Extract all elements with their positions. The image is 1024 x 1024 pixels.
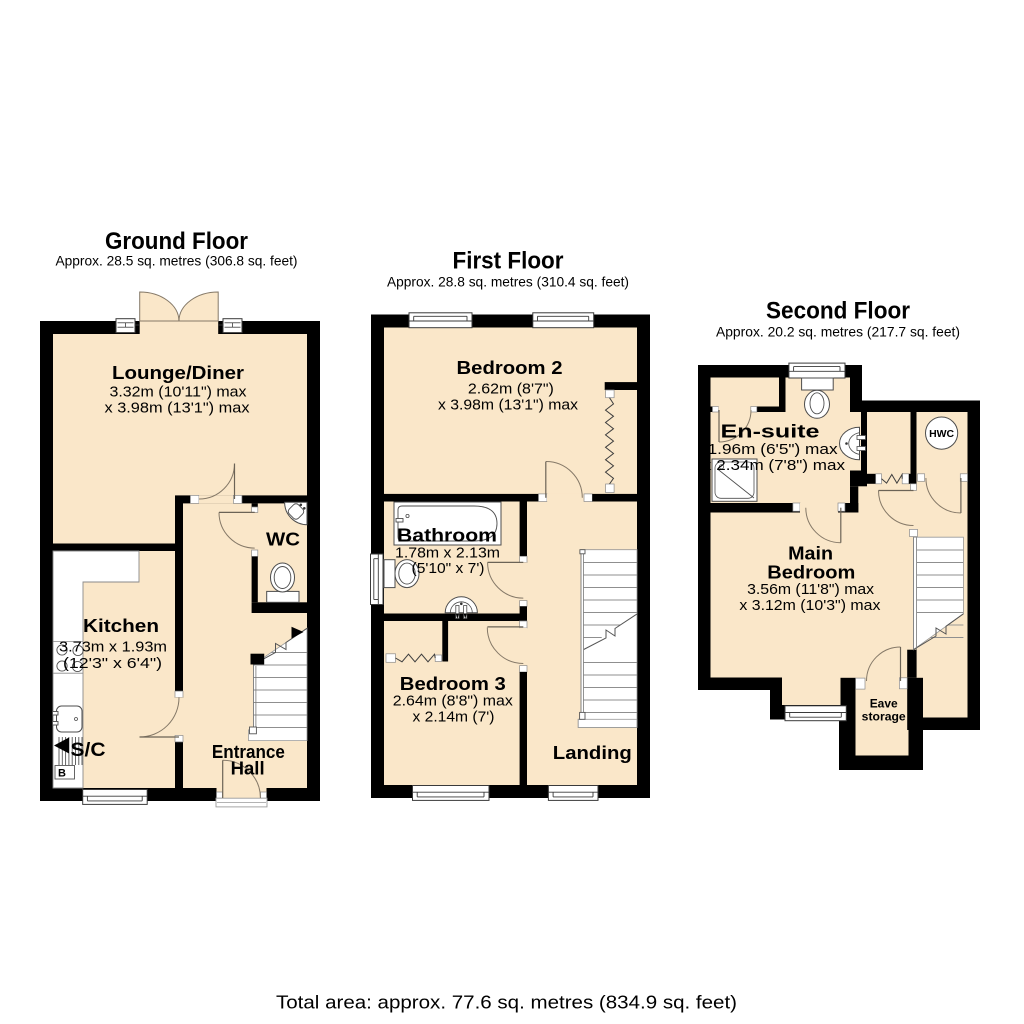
svg-text:(12'3" x 6'4"): (12'3" x 6'4")	[63, 655, 162, 672]
svg-text:storage: storage	[862, 710, 906, 724]
svg-text:3.73m x 1.93m: 3.73m x 1.93m	[59, 639, 167, 656]
svg-text:x 3.12m (10'3") max: x 3.12m (10'3") max	[739, 597, 881, 614]
svg-text:Second Floor: Second Floor	[766, 298, 910, 325]
svg-text:HWC: HWC	[929, 429, 954, 440]
svg-text:First Floor: First Floor	[453, 248, 564, 275]
svg-text:Ground Floor: Ground Floor	[105, 228, 248, 255]
svg-text:Hall: Hall	[231, 759, 265, 779]
svg-text:B: B	[58, 768, 66, 780]
svg-text:Lounge/Diner: Lounge/Diner	[112, 363, 244, 383]
svg-text:Landing: Landing	[553, 743, 632, 763]
svg-text:x 2.14m (7'): x 2.14m (7')	[413, 709, 495, 726]
svg-text:2.64m (8'8") max: 2.64m (8'8") max	[393, 693, 514, 710]
svg-text:Bathroom: Bathroom	[397, 526, 497, 546]
svg-text:3.32m (10'11") max: 3.32m (10'11") max	[110, 384, 248, 401]
svg-text:(5'10" x 7'): (5'10" x 7')	[412, 560, 485, 577]
svg-text:x 3.98m (13'1") max: x 3.98m (13'1") max	[438, 397, 579, 414]
svg-text:S/C: S/C	[71, 740, 106, 761]
svg-text:Kitchen: Kitchen	[83, 616, 159, 636]
svg-text:Bedroom 2: Bedroom 2	[457, 358, 563, 378]
svg-text:Approx. 20.2 sq. metres (217.7: Approx. 20.2 sq. metres (217.7 sq. feet)	[716, 324, 960, 340]
svg-text:2.62m (8'7"): 2.62m (8'7")	[468, 381, 554, 398]
svg-text:Approx. 28.8 sq. metres (310.4: Approx. 28.8 sq. metres (310.4 sq. feet)	[387, 274, 629, 290]
svg-text:Total area: approx. 77.6 sq. m: Total area: approx. 77.6 sq. metres (834…	[276, 992, 737, 1013]
svg-text:Bedroom 3: Bedroom 3	[400, 674, 506, 694]
svg-text:Eave: Eave	[870, 697, 898, 711]
svg-text:1.78m x 2.13m: 1.78m x 2.13m	[395, 545, 500, 562]
svg-text:Bedroom: Bedroom	[767, 563, 855, 583]
svg-text:WC: WC	[266, 530, 300, 550]
svg-text:En-suite: En-suite	[721, 422, 820, 442]
svg-text:1.96m (6'5") max: 1.96m (6'5") max	[708, 441, 839, 458]
svg-text:Approx. 28.5 sq. metres (306.8: Approx. 28.5 sq. metres (306.8 sq. feet)	[56, 253, 298, 269]
svg-text:3.56m (11'8") max: 3.56m (11'8") max	[747, 581, 875, 598]
svg-text:x 2.34m (7'8") max: x 2.34m (7'8") max	[703, 457, 846, 474]
svg-text:Main: Main	[788, 544, 833, 564]
svg-text:x 3.98m (13'1") max: x 3.98m (13'1") max	[105, 400, 251, 417]
